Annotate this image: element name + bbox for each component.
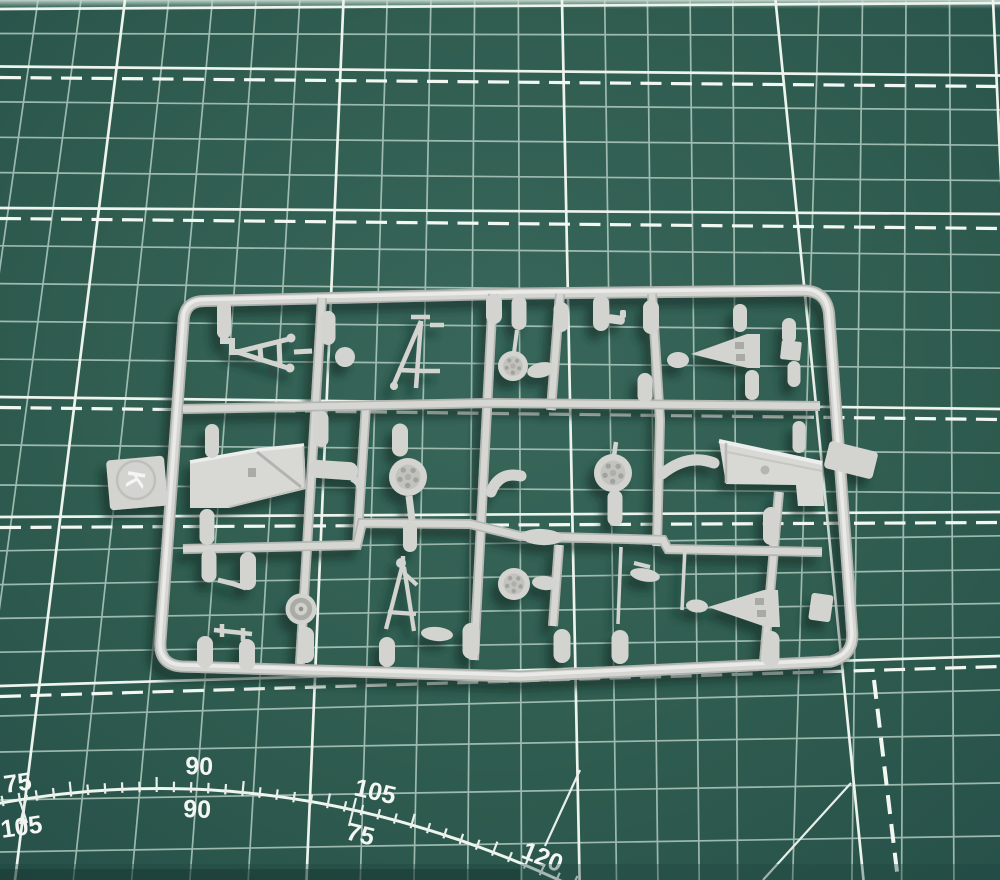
svg-text:90: 90 — [185, 752, 214, 781]
svg-text:105: 105 — [0, 810, 44, 844]
svg-text:75: 75 — [2, 767, 34, 799]
svg-text:90: 90 — [183, 795, 212, 824]
